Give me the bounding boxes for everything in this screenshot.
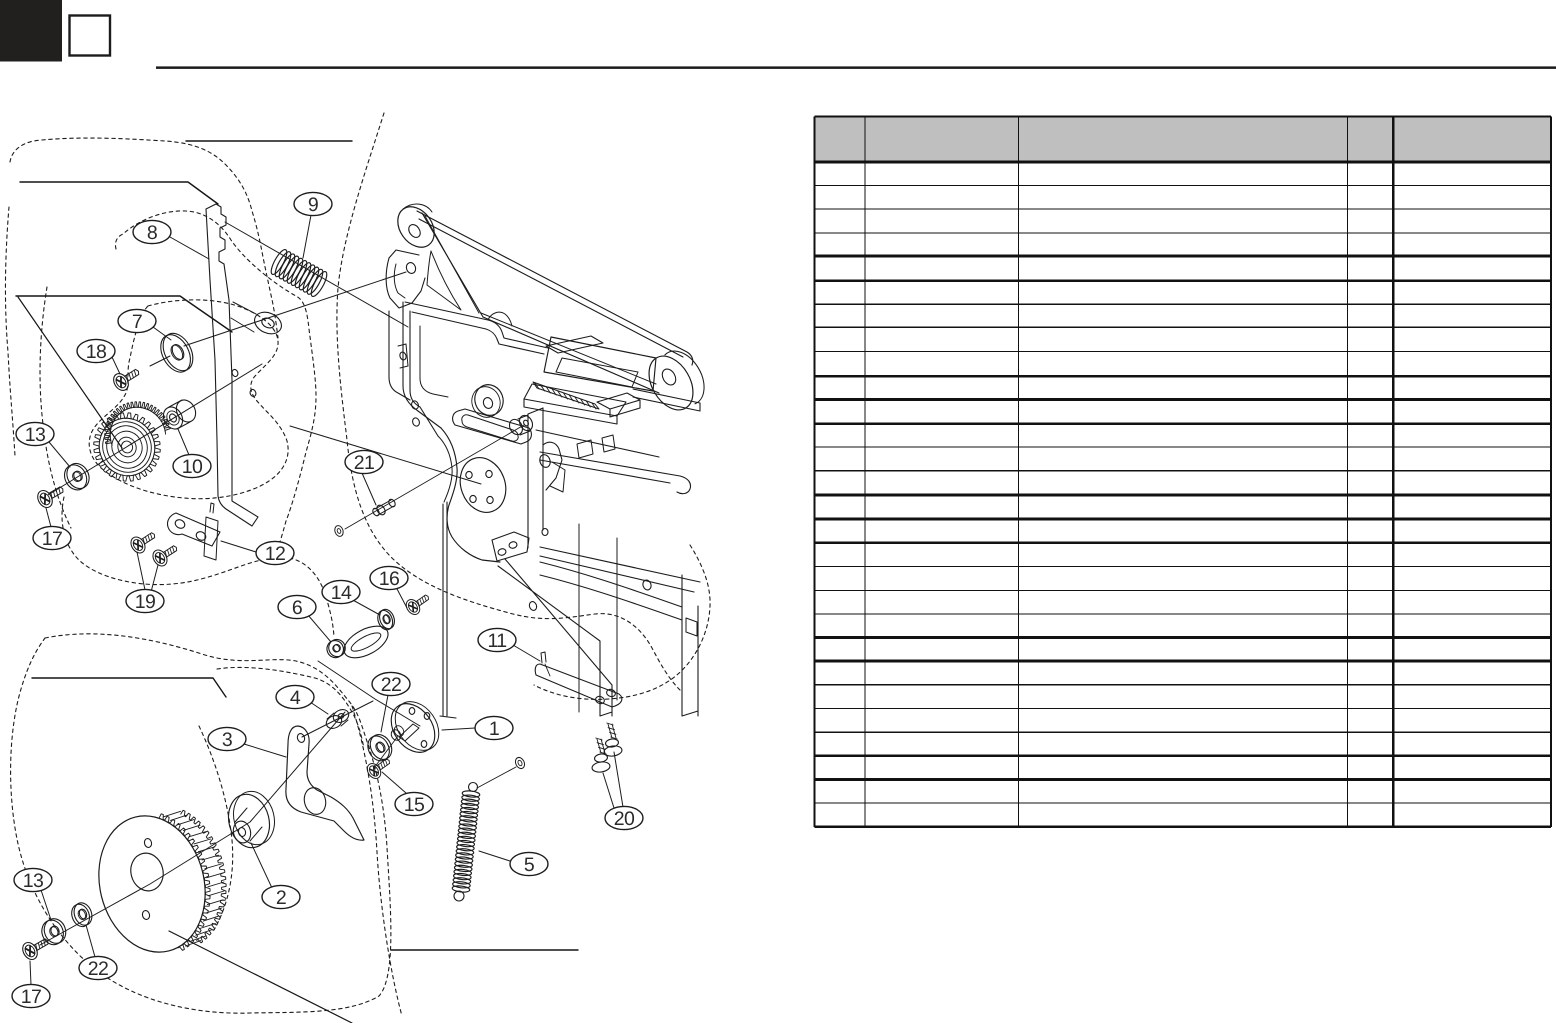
svg-text:13: 13 bbox=[25, 424, 46, 446]
svg-text:16: 16 bbox=[379, 568, 400, 590]
svg-text:13: 13 bbox=[23, 870, 44, 892]
svg-text:22: 22 bbox=[88, 958, 109, 980]
svg-text:12: 12 bbox=[265, 543, 286, 565]
svg-text:17: 17 bbox=[21, 986, 42, 1008]
svg-text:5: 5 bbox=[524, 854, 535, 876]
svg-text:18: 18 bbox=[86, 341, 107, 363]
svg-text:7: 7 bbox=[132, 311, 142, 333]
svg-text:14: 14 bbox=[331, 582, 352, 604]
svg-text:20: 20 bbox=[614, 808, 635, 830]
svg-text:17: 17 bbox=[42, 528, 63, 550]
svg-text:21: 21 bbox=[354, 452, 375, 474]
svg-text:15: 15 bbox=[404, 794, 425, 816]
svg-text:8: 8 bbox=[147, 222, 157, 244]
svg-text:1: 1 bbox=[489, 718, 499, 740]
svg-text:19: 19 bbox=[135, 591, 156, 613]
svg-text:4: 4 bbox=[290, 687, 301, 709]
svg-text:10: 10 bbox=[182, 456, 203, 478]
svg-text:11: 11 bbox=[487, 630, 506, 652]
svg-text:22: 22 bbox=[381, 674, 402, 696]
svg-text:6: 6 bbox=[292, 597, 302, 619]
svg-text:3: 3 bbox=[222, 729, 232, 751]
svg-text:2: 2 bbox=[276, 887, 286, 909]
svg-text:9: 9 bbox=[308, 194, 318, 216]
